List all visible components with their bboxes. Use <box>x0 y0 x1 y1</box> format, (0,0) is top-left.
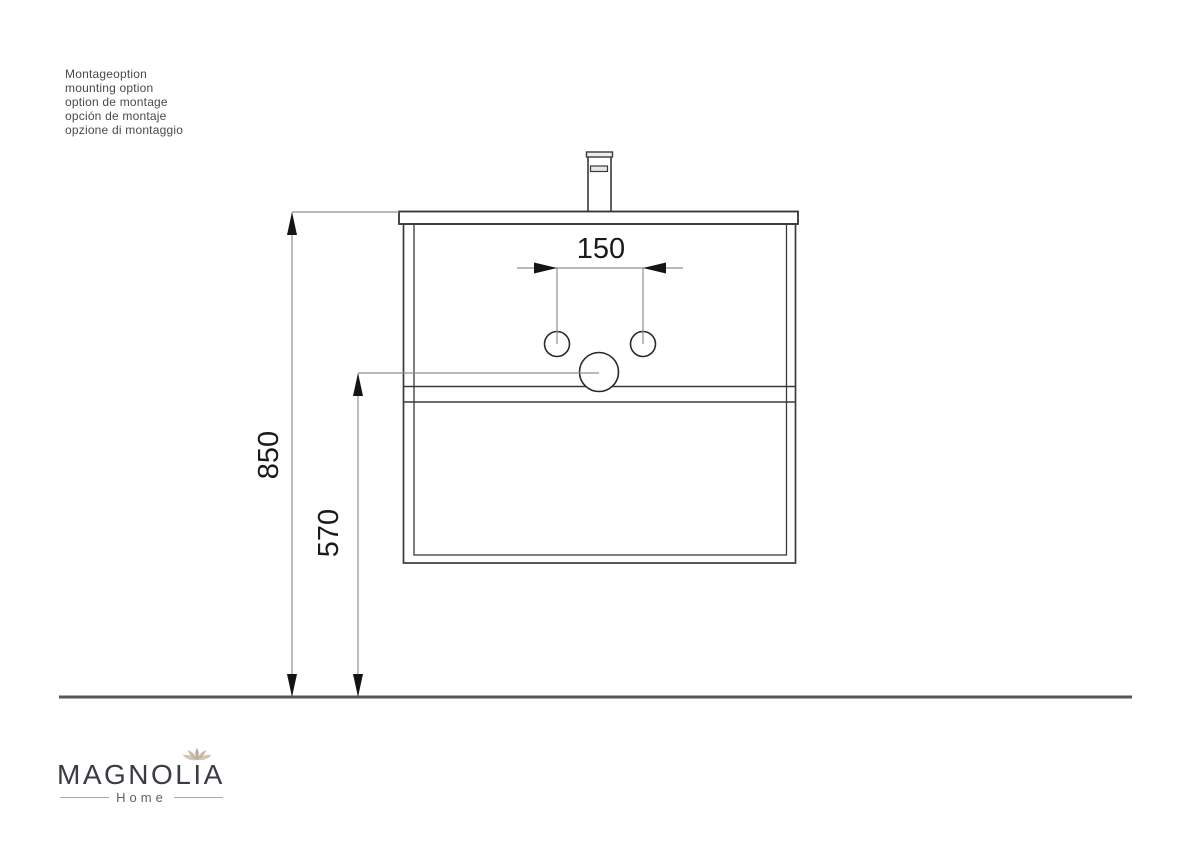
dim-570-label: 570 <box>313 509 345 557</box>
cabinet-outer-frame <box>404 224 796 563</box>
faucet-lever <box>591 166 608 172</box>
dim-150-label: 150 <box>577 233 625 265</box>
brand-subtitle-row: Home <box>60 790 223 805</box>
dim-150-arrow-left-icon <box>534 263 557 274</box>
faucet-cap <box>587 152 613 157</box>
dim-850-label: 850 <box>253 431 285 479</box>
cabinet-body <box>404 224 796 563</box>
dim-850-arrow-down-icon <box>287 674 297 697</box>
dim-850-arrow-up-icon <box>287 212 297 235</box>
brand-name: MAGNOLIA <box>57 759 225 791</box>
dim-570-arrow-down-icon <box>353 674 363 697</box>
technical-drawing-page: Montageoption mounting option option de … <box>0 0 1200 849</box>
dim-150-arrow-right-icon <box>643 263 666 274</box>
right-rule <box>174 797 223 798</box>
faucet <box>587 152 613 212</box>
left-rule <box>60 797 109 798</box>
drain-hole <box>580 353 619 392</box>
dimension-150: 150 <box>517 233 683 344</box>
washbasin-top <box>399 212 798 225</box>
dimension-570: 570 <box>313 373 599 697</box>
dimension-850: 850 <box>253 212 399 697</box>
brand-subtitle: Home <box>116 790 167 805</box>
dim-570-arrow-up-icon <box>353 373 363 396</box>
faucet-body <box>588 155 611 212</box>
vanity-elevation-drawing: 150 850 570 <box>0 0 1200 849</box>
